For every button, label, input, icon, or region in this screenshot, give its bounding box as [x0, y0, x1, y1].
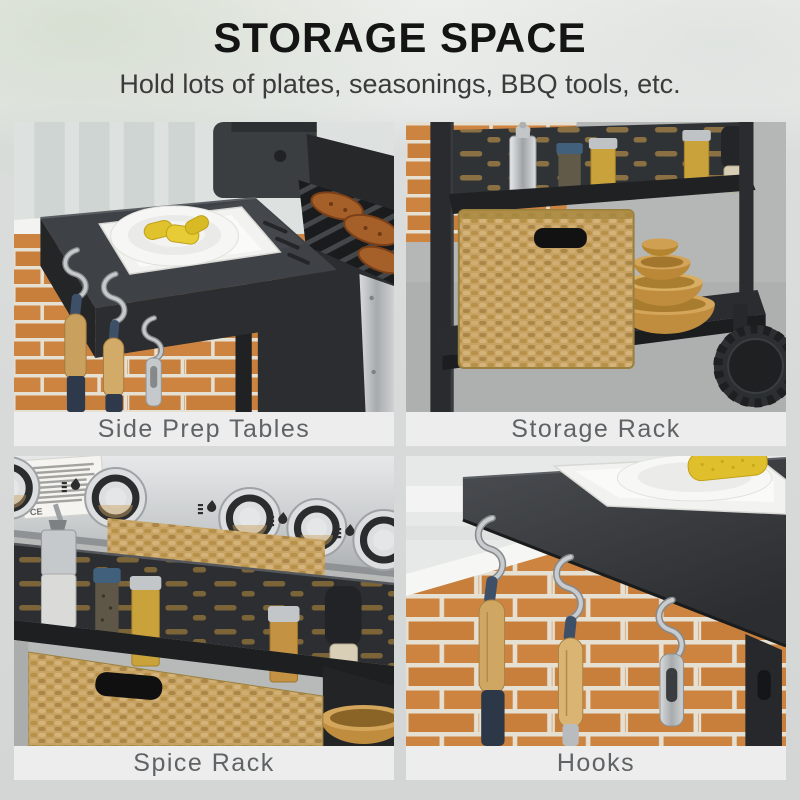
table-leg: [745, 634, 782, 746]
table-leg: [235, 324, 251, 412]
caption-side-prep-tables: Side Prep Tables: [14, 412, 394, 446]
caption-spice-rack: Spice Rack: [14, 746, 394, 780]
photo-hooks: [406, 456, 786, 746]
storage-space-infographic: STORAGE SPACE Hold lots of plates, seaso…: [0, 0, 800, 800]
panel-side-prep-tables: Side Prep Tables: [14, 122, 394, 446]
photo-side-prep-tables: [14, 122, 394, 412]
page-subtitle: Hold lots of plates, seasonings, BBQ too…: [0, 69, 800, 100]
header: STORAGE SPACE Hold lots of plates, seaso…: [0, 0, 800, 122]
caption-hooks: Hooks: [406, 746, 786, 780]
stainless-opener: [660, 654, 683, 726]
feature-grid: Side Prep Tables: [0, 122, 800, 780]
page-title: STORAGE SPACE: [0, 14, 800, 62]
panel-spice-rack: CE: [14, 456, 394, 780]
panel-hooks: Hooks: [406, 456, 786, 780]
caption-storage-rack: Storage Rack: [406, 412, 786, 446]
storage-rack-illustration: [406, 122, 786, 412]
photo-storage-rack: [406, 122, 786, 412]
spice-rack-illustration: CE: [14, 456, 394, 746]
wicker-basket: [459, 210, 634, 368]
photo-spice-rack: CE: [14, 456, 394, 746]
concrete-corner: [14, 640, 28, 746]
side-prep-tables-illustration: [14, 122, 394, 412]
basket-handle: [534, 228, 587, 248]
stainless-side-panel: [359, 274, 394, 412]
panel-storage-rack: Storage Rack: [406, 122, 786, 446]
hooks-illustration: [406, 456, 786, 746]
